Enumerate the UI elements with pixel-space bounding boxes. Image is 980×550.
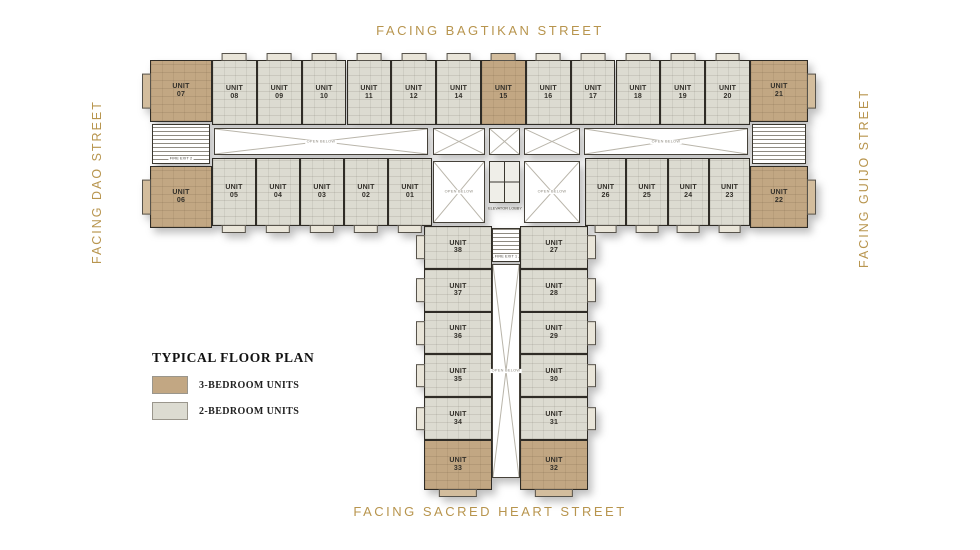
legend-label: 2-BEDROOM UNITS [199,406,299,417]
open-below-area [524,128,580,155]
elevator-shafts [489,161,520,203]
unit-label: UNIT38 [449,240,466,255]
unit-10: UNIT10 [302,60,347,125]
unit-label: UNIT14 [450,85,467,100]
unit-label: UNIT10 [316,85,333,100]
unit-label: UNIT24 [680,184,697,199]
open-below-area: OPEN BELOW [492,264,520,478]
unit-label: UNIT36 [449,325,466,340]
unit-label: UNIT08 [226,85,243,100]
unit-04: UNIT04 [256,158,300,226]
balcony [354,225,378,233]
unit-12: UNIT12 [391,60,436,125]
balcony [677,225,700,233]
balcony [356,53,381,61]
unit-07: UNIT07 [150,60,212,122]
unit-label: UNIT07 [172,83,189,98]
balcony [536,53,561,61]
unit-36: UNIT36 [424,312,492,355]
unit-label: UNIT05 [225,184,242,199]
balcony [636,225,659,233]
open-below-area: OPEN BELOW [524,161,580,223]
unit-31: UNIT31 [520,397,588,440]
balcony [401,53,426,61]
unit-26: UNIT26 [585,158,626,226]
open-below-cross-icon [490,129,519,154]
unit-label: UNIT25 [638,184,655,199]
unit-label: UNIT34 [449,411,466,426]
unit-37: UNIT37 [424,269,492,312]
open-below-cross-icon [525,129,579,154]
unit-label: UNIT02 [357,184,374,199]
unit-03: UNIT03 [300,158,344,226]
unit-label: UNIT30 [545,368,562,383]
elevator-lobby-label: ELEVATOR LOBBY [488,207,523,211]
balcony [439,489,477,497]
open-below-label: OPEN BELOW [650,139,681,143]
unit-25: UNIT25 [626,158,667,226]
stairwell: FIRE EXIT 2 [152,124,210,164]
stairwell: FIRE EXIT 1 [492,228,520,262]
balcony [625,53,650,61]
balcony [491,53,516,61]
unit-label: UNIT23 [721,184,738,199]
unit-15: UNIT15 [481,60,526,125]
balcony [594,225,617,233]
balcony [587,321,596,345]
balcony [535,489,573,497]
unit-label: UNIT32 [545,457,562,472]
unit-label: UNIT17 [585,85,602,100]
unit-30: UNIT30 [520,354,588,397]
unit-label: UNIT11 [360,85,377,100]
legend-swatch [152,376,188,394]
open-below-label: OPEN BELOW [490,369,521,373]
unit-16: UNIT16 [526,60,571,125]
fire-exit-label: FIRE EXIT 2 [168,157,193,161]
unit-34: UNIT34 [424,397,492,440]
unit-label: UNIT16 [540,85,557,100]
stairwell [752,124,806,164]
balcony [446,53,471,61]
unit-label: UNIT20 [719,85,736,100]
balcony [310,225,334,233]
unit-label: UNIT18 [629,85,646,100]
balcony [267,53,292,61]
unit-38: UNIT38 [424,226,492,269]
unit-label: UNIT33 [449,457,466,472]
open-below-label: OPEN BELOW [305,139,336,143]
unit-27: UNIT27 [520,226,588,269]
unit-24: UNIT24 [668,158,709,226]
floor-plan-drawing: UNIT07UNIT08UNIT09UNIT10UNIT11UNIT12UNIT… [0,0,980,550]
unit-label: UNIT01 [401,184,418,199]
unit-11: UNIT11 [347,60,392,125]
balcony [312,53,337,61]
unit-label: UNIT06 [172,189,189,204]
unit-09: UNIT09 [257,60,302,125]
unit-17: UNIT17 [571,60,616,125]
balcony [587,364,596,388]
open-below-cross-icon [434,129,484,154]
balcony [807,74,816,109]
unit-label: UNIT35 [449,368,466,383]
unit-18: UNIT18 [616,60,661,125]
balcony [222,53,247,61]
legend-label: 3-BEDROOM UNITS [199,380,299,391]
balcony [587,236,596,260]
balcony [416,236,425,260]
balcony [416,321,425,345]
balcony [142,180,151,215]
unit-35: UNIT35 [424,354,492,397]
unit-19: UNIT19 [660,60,705,125]
unit-label: UNIT37 [449,283,466,298]
open-below-area [489,128,520,155]
open-below-area: OPEN BELOW [584,128,748,155]
legend-item-2br: 2-BEDROOM UNITS [152,402,362,420]
unit-29: UNIT29 [520,312,588,355]
open-below-area: OPEN BELOW [433,161,485,223]
unit-label: UNIT03 [313,184,330,199]
unit-02: UNIT02 [344,158,388,226]
legend: TYPICAL FLOOR PLAN 3-BEDROOM UNITS2-BEDR… [152,350,362,428]
open-below-area [433,128,485,155]
balcony [715,53,740,61]
open-below-area: OPEN BELOW [214,128,428,155]
unit-label: UNIT28 [545,283,562,298]
balcony [266,225,290,233]
unit-23: UNIT23 [709,158,750,226]
floor-plan-page: FACING BAGTIKAN STREET FACING DAO STREET… [0,0,980,550]
unit-06: UNIT06 [150,166,212,228]
balcony [416,278,425,302]
legend-swatch [152,402,188,420]
unit-label: UNIT26 [597,184,614,199]
unit-label: UNIT04 [269,184,286,199]
balcony [807,180,816,215]
fire-exit-label: FIRE EXIT 1 [493,255,518,259]
unit-label: UNIT27 [545,240,562,255]
unit-21: UNIT21 [750,60,808,122]
balcony [581,53,606,61]
open-below-label: OPEN BELOW [536,190,567,194]
balcony [416,407,425,431]
balcony [587,407,596,431]
open-below-label: OPEN BELOW [443,190,474,194]
unit-label: UNIT22 [770,189,787,204]
unit-05: UNIT05 [212,158,256,226]
balcony [416,364,425,388]
unit-08: UNIT08 [212,60,257,125]
unit-label: UNIT31 [545,411,562,426]
unit-32: UNIT32 [520,440,588,490]
unit-20: UNIT20 [705,60,750,125]
balcony [587,278,596,302]
legend-item-3br: 3-BEDROOM UNITS [152,376,362,394]
unit-22: UNIT22 [750,166,808,228]
unit-label: UNIT15 [495,85,512,100]
unit-label: UNIT09 [271,85,288,100]
unit-label: UNIT21 [770,83,787,98]
unit-label: UNIT29 [545,325,562,340]
balcony [222,225,246,233]
unit-01: UNIT01 [388,158,432,226]
balcony [718,225,741,233]
legend-title: TYPICAL FLOOR PLAN [152,350,362,366]
legend-items: 3-BEDROOM UNITS2-BEDROOM UNITS [152,376,362,420]
unit-14: UNIT14 [436,60,481,125]
balcony [142,74,151,109]
balcony [670,53,695,61]
unit-33: UNIT33 [424,440,492,490]
unit-label: UNIT19 [674,85,691,100]
unit-label: UNIT12 [405,85,422,100]
unit-28: UNIT28 [520,269,588,312]
balcony [398,225,422,233]
